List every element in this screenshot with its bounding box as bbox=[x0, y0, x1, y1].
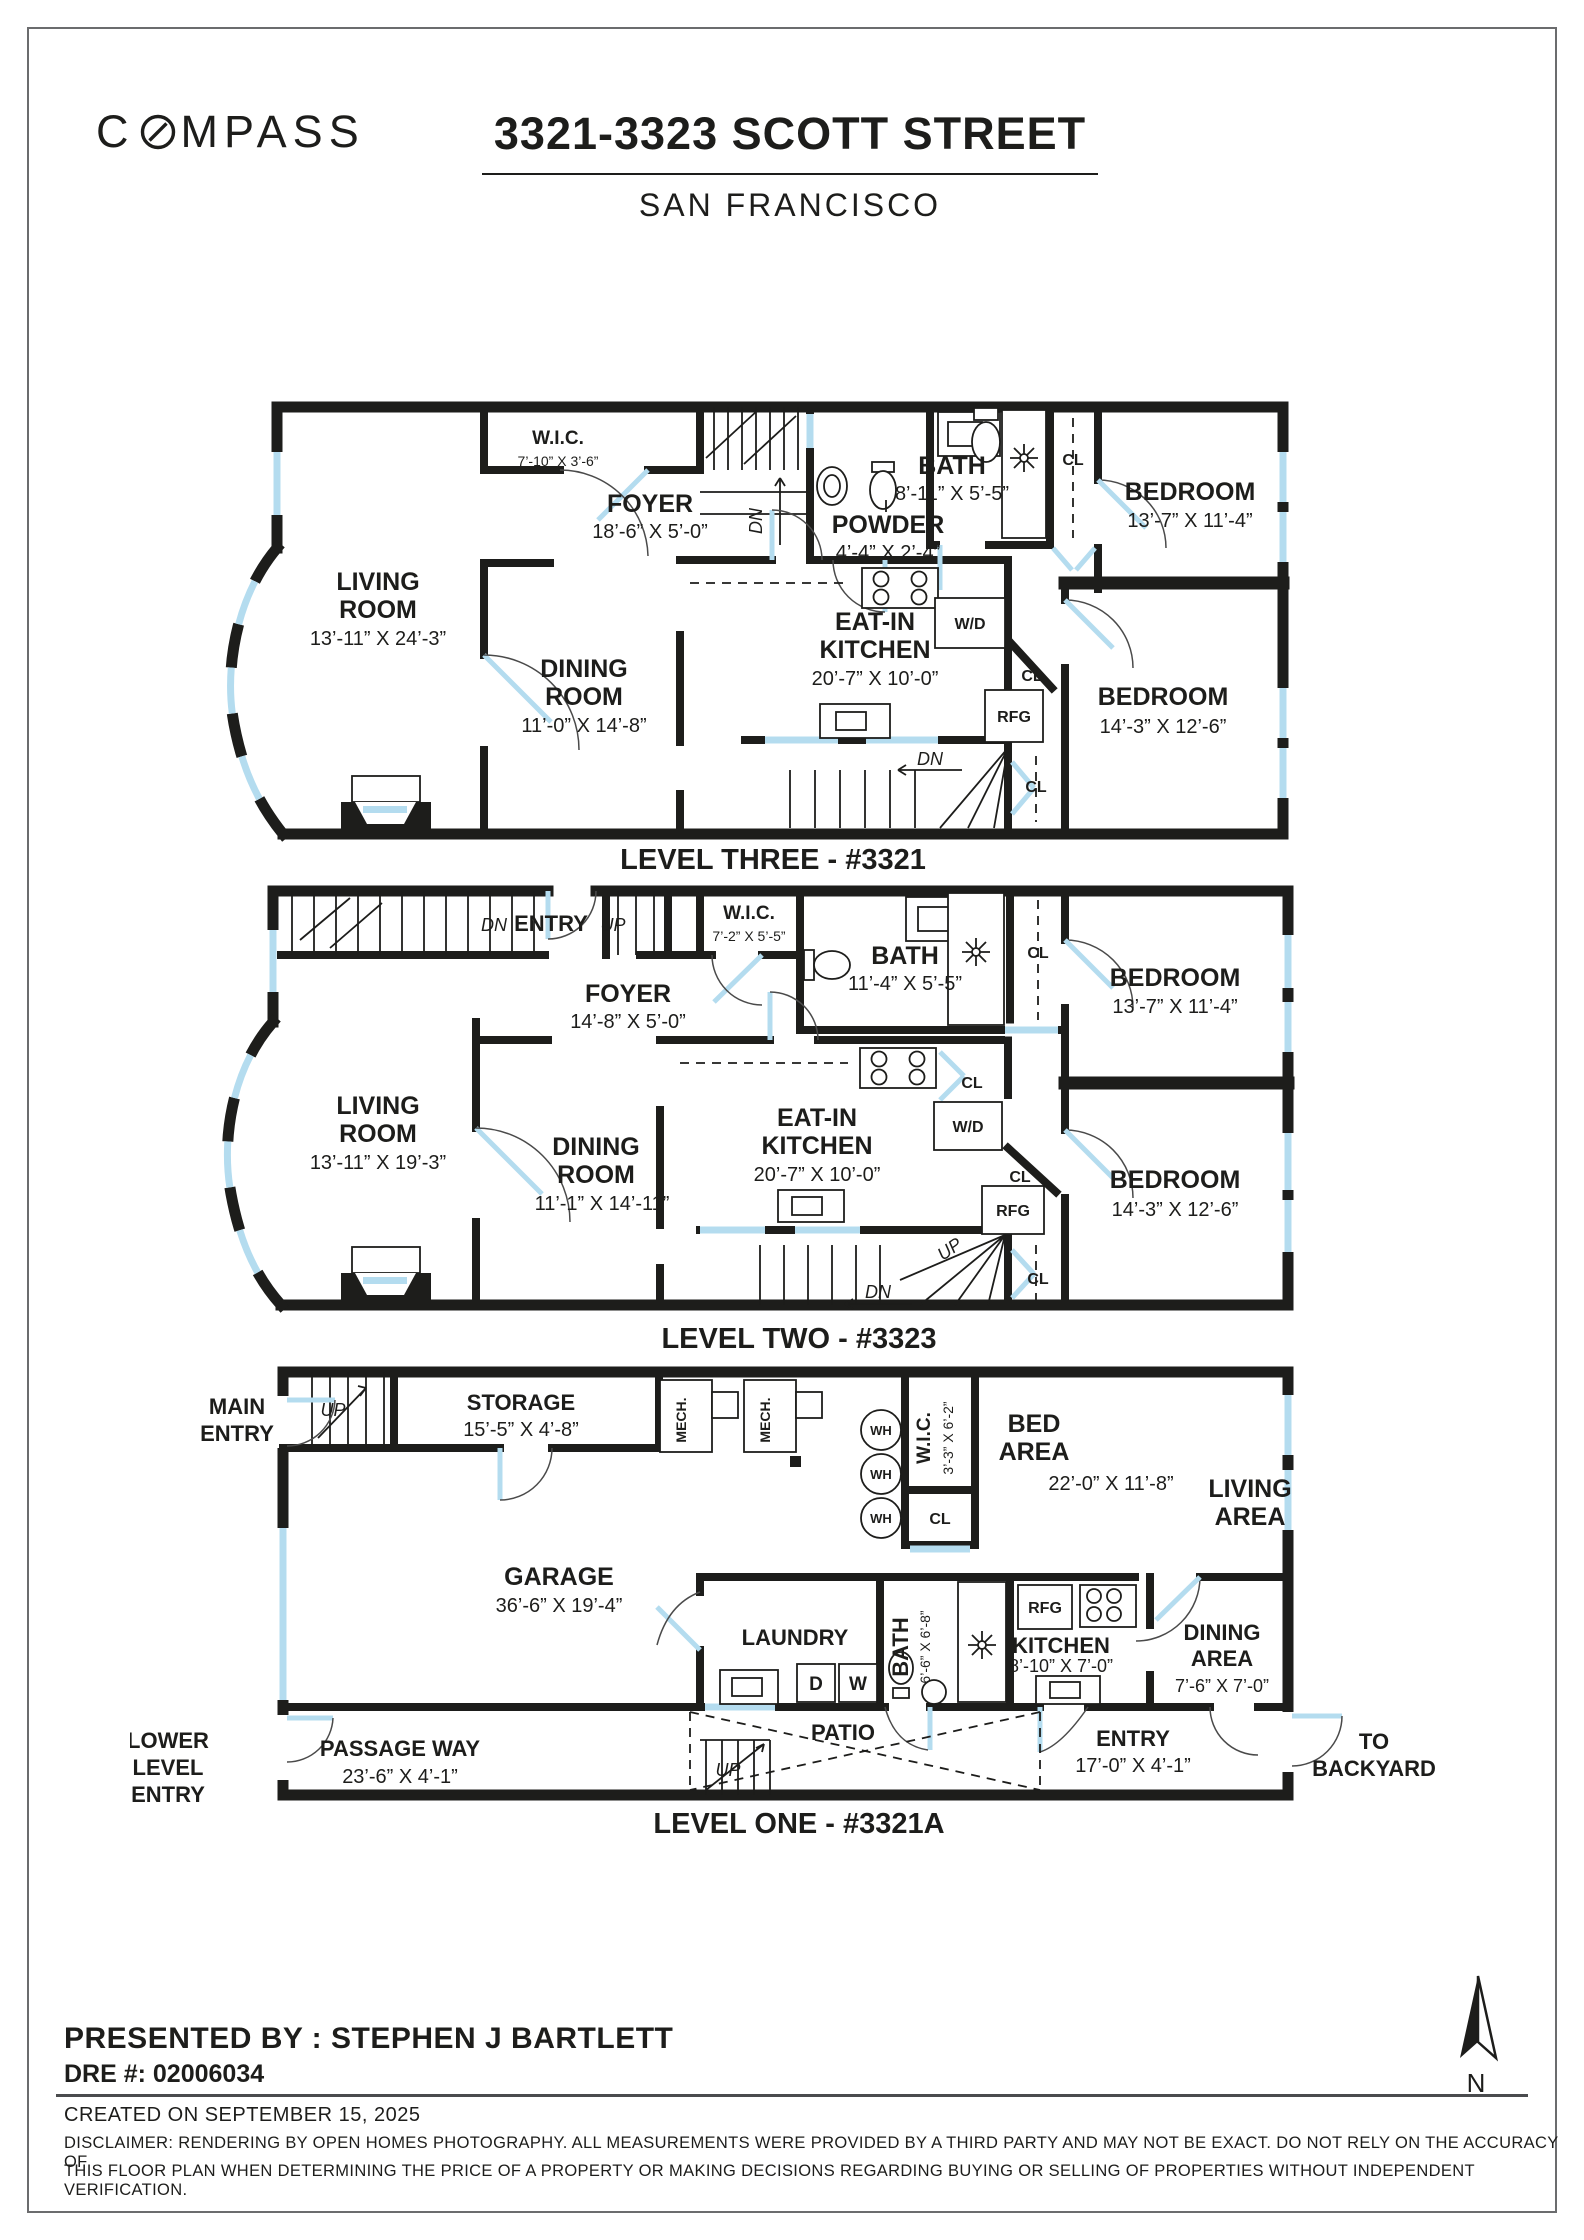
l1-rfg-label: RFG bbox=[1028, 1600, 1062, 1617]
l1-up-label: UP bbox=[320, 1400, 345, 1420]
l1-cl-wic: CL bbox=[929, 1511, 951, 1528]
l3-bath-name: BATH bbox=[918, 452, 986, 480]
l1-wh1-label: WH bbox=[870, 1423, 892, 1438]
l3-kitchen-line2: KITCHEN bbox=[819, 636, 930, 664]
l1-bath-dims: 6’-6” X 6’-8” bbox=[917, 1610, 933, 1683]
l3-wic-dims: 7’-10” X 3’-6” bbox=[518, 453, 599, 469]
l3-cl-bath: CL bbox=[1062, 452, 1084, 469]
l1-wh3-label: WH bbox=[870, 1511, 892, 1526]
l3-foyer-name: FOYER bbox=[607, 490, 693, 518]
l1-room-labels: MAIN ENTRY UP STORAGE 15’-5” X 4’-8” MEC… bbox=[130, 1390, 1436, 1840]
l1-dining-area-dims: 7’-6” X 7’-0” bbox=[1175, 1676, 1269, 1696]
l1-entry-name: ENTRY bbox=[1096, 1726, 1170, 1751]
l1-up2-label: UP bbox=[715, 1760, 740, 1780]
l2-bath-name: BATH bbox=[871, 942, 939, 970]
l2-dining-dims: 11’-1” X 14’-11” bbox=[535, 1193, 670, 1215]
l2-foyer-name: FOYER bbox=[585, 980, 671, 1008]
l2-bedroom1-name: BEDROOM bbox=[1110, 964, 1241, 992]
l1-entry-dims: 17’-0” X 4’-1” bbox=[1075, 1755, 1191, 1777]
l1-passage-dims: 23’-6” X 4’-1” bbox=[342, 1766, 458, 1788]
l1-lower-entry-line2: LEVEL bbox=[133, 1755, 204, 1780]
l1-backyard-line1: TO bbox=[1359, 1729, 1389, 1754]
logo-letters-rest: MPASS bbox=[181, 106, 365, 158]
l3-foyer-dims: 18’-6” X 5’-0” bbox=[592, 521, 708, 543]
l1-patio-name: PATIO bbox=[811, 1720, 875, 1745]
disclaimer-line2: THIS FLOOR PLAN WHEN DETERMINING THE PRI… bbox=[64, 2162, 1584, 2200]
compass-o-icon bbox=[138, 112, 178, 152]
l3-bedroom2-dims: 14’-3” X 12’-6” bbox=[1100, 716, 1227, 738]
l3-bedroom1-dims: 13’-7” X 11’-4” bbox=[1127, 510, 1252, 532]
north-arrow-icon: N bbox=[1438, 1972, 1514, 2098]
l3-wic-name: W.I.C. bbox=[532, 428, 584, 449]
page-subtitle: SAN FRANCISCO bbox=[400, 187, 1180, 224]
l1-lower-entry-line1: LOWER bbox=[130, 1728, 209, 1753]
l2-cl-mid: CL bbox=[1009, 1169, 1031, 1186]
l1-laundry-name: LAUNDRY bbox=[742, 1625, 849, 1650]
l3-bath-dims: 8’-11” X 5’-5” bbox=[895, 483, 1009, 505]
l1-dryer-label: D bbox=[809, 1674, 823, 1695]
l3-cl-kitchen: CL bbox=[1021, 668, 1043, 685]
l2-kitchen-line1: EAT-IN bbox=[777, 1104, 857, 1132]
l3-living-dims: 13’-11” X 24’-3” bbox=[310, 628, 446, 650]
floor-plan-page: C MPASS 3321-3323 SCOTT STREET SAN FRANC… bbox=[0, 0, 1584, 2240]
l2-dn-label: DN bbox=[481, 915, 508, 935]
l2-cl-bath: CL bbox=[1027, 945, 1049, 962]
l2-foyer-dims: 14’-8” X 5’-0” bbox=[570, 1011, 686, 1033]
l2-living-line1: LIVING bbox=[336, 1092, 419, 1120]
l1-storage-dims: 15’-5” X 4’-8” bbox=[463, 1419, 579, 1441]
compass-logo: C MPASS bbox=[96, 106, 365, 158]
l2-wic-name: W.I.C. bbox=[723, 903, 775, 924]
l2-bedroom1-dims: 13’-7” X 11’-4” bbox=[1112, 996, 1237, 1018]
l2-living-dims: 13’-11” X 19’-3” bbox=[310, 1152, 446, 1174]
created-date: CREATED ON SEPTEMBER 15, 2025 bbox=[64, 2104, 420, 2127]
l3-powder-name: POWDER bbox=[832, 511, 945, 539]
l1-passage-name: PASSAGE WAY bbox=[320, 1736, 480, 1761]
l1-bath-name: BATH bbox=[888, 1617, 913, 1676]
l1-kitchen-name: KITCHEN bbox=[1012, 1633, 1110, 1658]
l1-mech2-label: MECH. bbox=[757, 1397, 773, 1442]
l3-dining-line2: ROOM bbox=[545, 683, 623, 711]
l3-dining-dims: 11’-0” X 14’-8” bbox=[521, 715, 646, 737]
l1-living-area-line2: AREA bbox=[1215, 1503, 1286, 1531]
l3-living-line2: ROOM bbox=[339, 596, 417, 624]
floor-plan-level-two: DN ENTRY UP W.I.C. 7’-2” X 5’-5” FOYER 1… bbox=[175, 875, 1330, 1355]
l1-wic-name: W.I.C. bbox=[914, 1412, 935, 1464]
l1-kitchen-dims: 8’-10” X 7’-0” bbox=[1009, 1656, 1113, 1676]
l2-cl-bedroom2: CL bbox=[1027, 1271, 1049, 1288]
l3-bedroom2-name: BEDROOM bbox=[1098, 683, 1229, 711]
logo-letter-c: C bbox=[96, 106, 135, 158]
l2-cl-kitchen: CL bbox=[961, 1075, 983, 1092]
l3-wd-label: W/D bbox=[954, 616, 985, 633]
l3-cl-bedroom2: CL bbox=[1025, 779, 1047, 796]
l3-rfg-label: RFG bbox=[997, 709, 1031, 726]
l1-bed-area-line1: BED bbox=[1008, 1410, 1061, 1438]
l2-kitchen-line2: KITCHEN bbox=[761, 1132, 872, 1160]
l1-bed-area-dims: 22’-0” X 11’-8” bbox=[1048, 1473, 1173, 1495]
l2-dn2-label: DN bbox=[865, 1282, 892, 1302]
l1-wic-dims: 3’-3” X 6’-2” bbox=[940, 1401, 956, 1474]
l1-living-area-line1: LIVING bbox=[1208, 1475, 1291, 1503]
l1-main-entry-line1: MAIN bbox=[209, 1394, 265, 1419]
title-block: 3321-3323 SCOTT STREET SAN FRANCISCO bbox=[400, 108, 1180, 224]
l1-bed-area-line2: AREA bbox=[999, 1438, 1070, 1466]
l2-dining-line1: DINING bbox=[552, 1133, 640, 1161]
l1-storage-name: STORAGE bbox=[467, 1390, 575, 1415]
l3-dining-line1: DINING bbox=[540, 655, 628, 683]
l2-living-line2: ROOM bbox=[339, 1120, 417, 1148]
l1-backyard-line2: BACKYARD bbox=[1312, 1756, 1436, 1781]
l3-dn-label: DN bbox=[746, 507, 766, 534]
l2-bath-dims: 11’-4” X 5’-5” bbox=[848, 973, 962, 995]
level-one-label: LEVEL ONE - #3321A bbox=[653, 1808, 944, 1840]
l1-dining-area-line2: AREA bbox=[1191, 1646, 1253, 1671]
l3-dn2-label: DN bbox=[917, 749, 944, 769]
l3-kitchen-dims: 20’-7” X 10’-0” bbox=[812, 668, 939, 690]
l1-mech1-label: MECH. bbox=[673, 1397, 689, 1442]
l1-main-entry-line2: ENTRY bbox=[200, 1421, 274, 1446]
l1-garage-name: GARAGE bbox=[504, 1563, 614, 1591]
l2-entry-name: ENTRY bbox=[514, 911, 588, 936]
l2-up2-label: UP bbox=[934, 1234, 966, 1265]
l1-doors bbox=[287, 1400, 1342, 1766]
l3-bedroom1-name: BEDROOM bbox=[1125, 478, 1256, 506]
floor-plan-level-three: LIVING ROOM 13’-11” X 24’-3” W.I.C. 7’-1… bbox=[175, 395, 1330, 875]
l1-garage-dims: 36’-6” X 19’-4” bbox=[496, 1595, 623, 1617]
l2-bedroom2-name: BEDROOM bbox=[1110, 1166, 1241, 1194]
l2-rfg-label: RFG bbox=[996, 1203, 1030, 1220]
l1-lower-entry-line3: ENTRY bbox=[131, 1782, 205, 1807]
footer-divider bbox=[56, 2094, 1528, 2097]
l2-up-label: UP bbox=[600, 915, 625, 935]
l2-kitchen-dims: 20’-7” X 10’-0” bbox=[754, 1164, 881, 1186]
l2-dining-line2: ROOM bbox=[557, 1161, 635, 1189]
dre-number: DRE #: 02006034 bbox=[64, 2060, 264, 2089]
l2-wic-dims: 7’-2” X 5’-5” bbox=[712, 928, 785, 944]
l3-living-line1: LIVING bbox=[336, 568, 419, 596]
l2-room-labels: DN ENTRY UP W.I.C. 7’-2” X 5’-5” FOYER 1… bbox=[310, 903, 1240, 1355]
l2-bedroom2-dims: 14’-3” X 12’-6” bbox=[1112, 1199, 1239, 1221]
l1-wh2-label: WH bbox=[870, 1467, 892, 1482]
l2-wd-label: W/D bbox=[952, 1119, 983, 1136]
presented-by: PRESENTED BY : STEPHEN J BARTLETT bbox=[64, 2022, 673, 2056]
l1-washer-label: W bbox=[849, 1674, 867, 1695]
level-three-label: LEVEL THREE - #3321 bbox=[620, 844, 926, 875]
floor-plan-level-one: MAIN ENTRY UP STORAGE 15’-5” X 4’-8” MEC… bbox=[130, 1350, 1460, 1845]
l3-powder-dims: 4’-4” X 2’-4” bbox=[836, 542, 940, 564]
l1-dining-area-line1: DINING bbox=[1184, 1620, 1261, 1645]
l3-kitchen-line1: EAT-IN bbox=[835, 608, 915, 636]
page-title: 3321-3323 SCOTT STREET bbox=[482, 108, 1098, 175]
